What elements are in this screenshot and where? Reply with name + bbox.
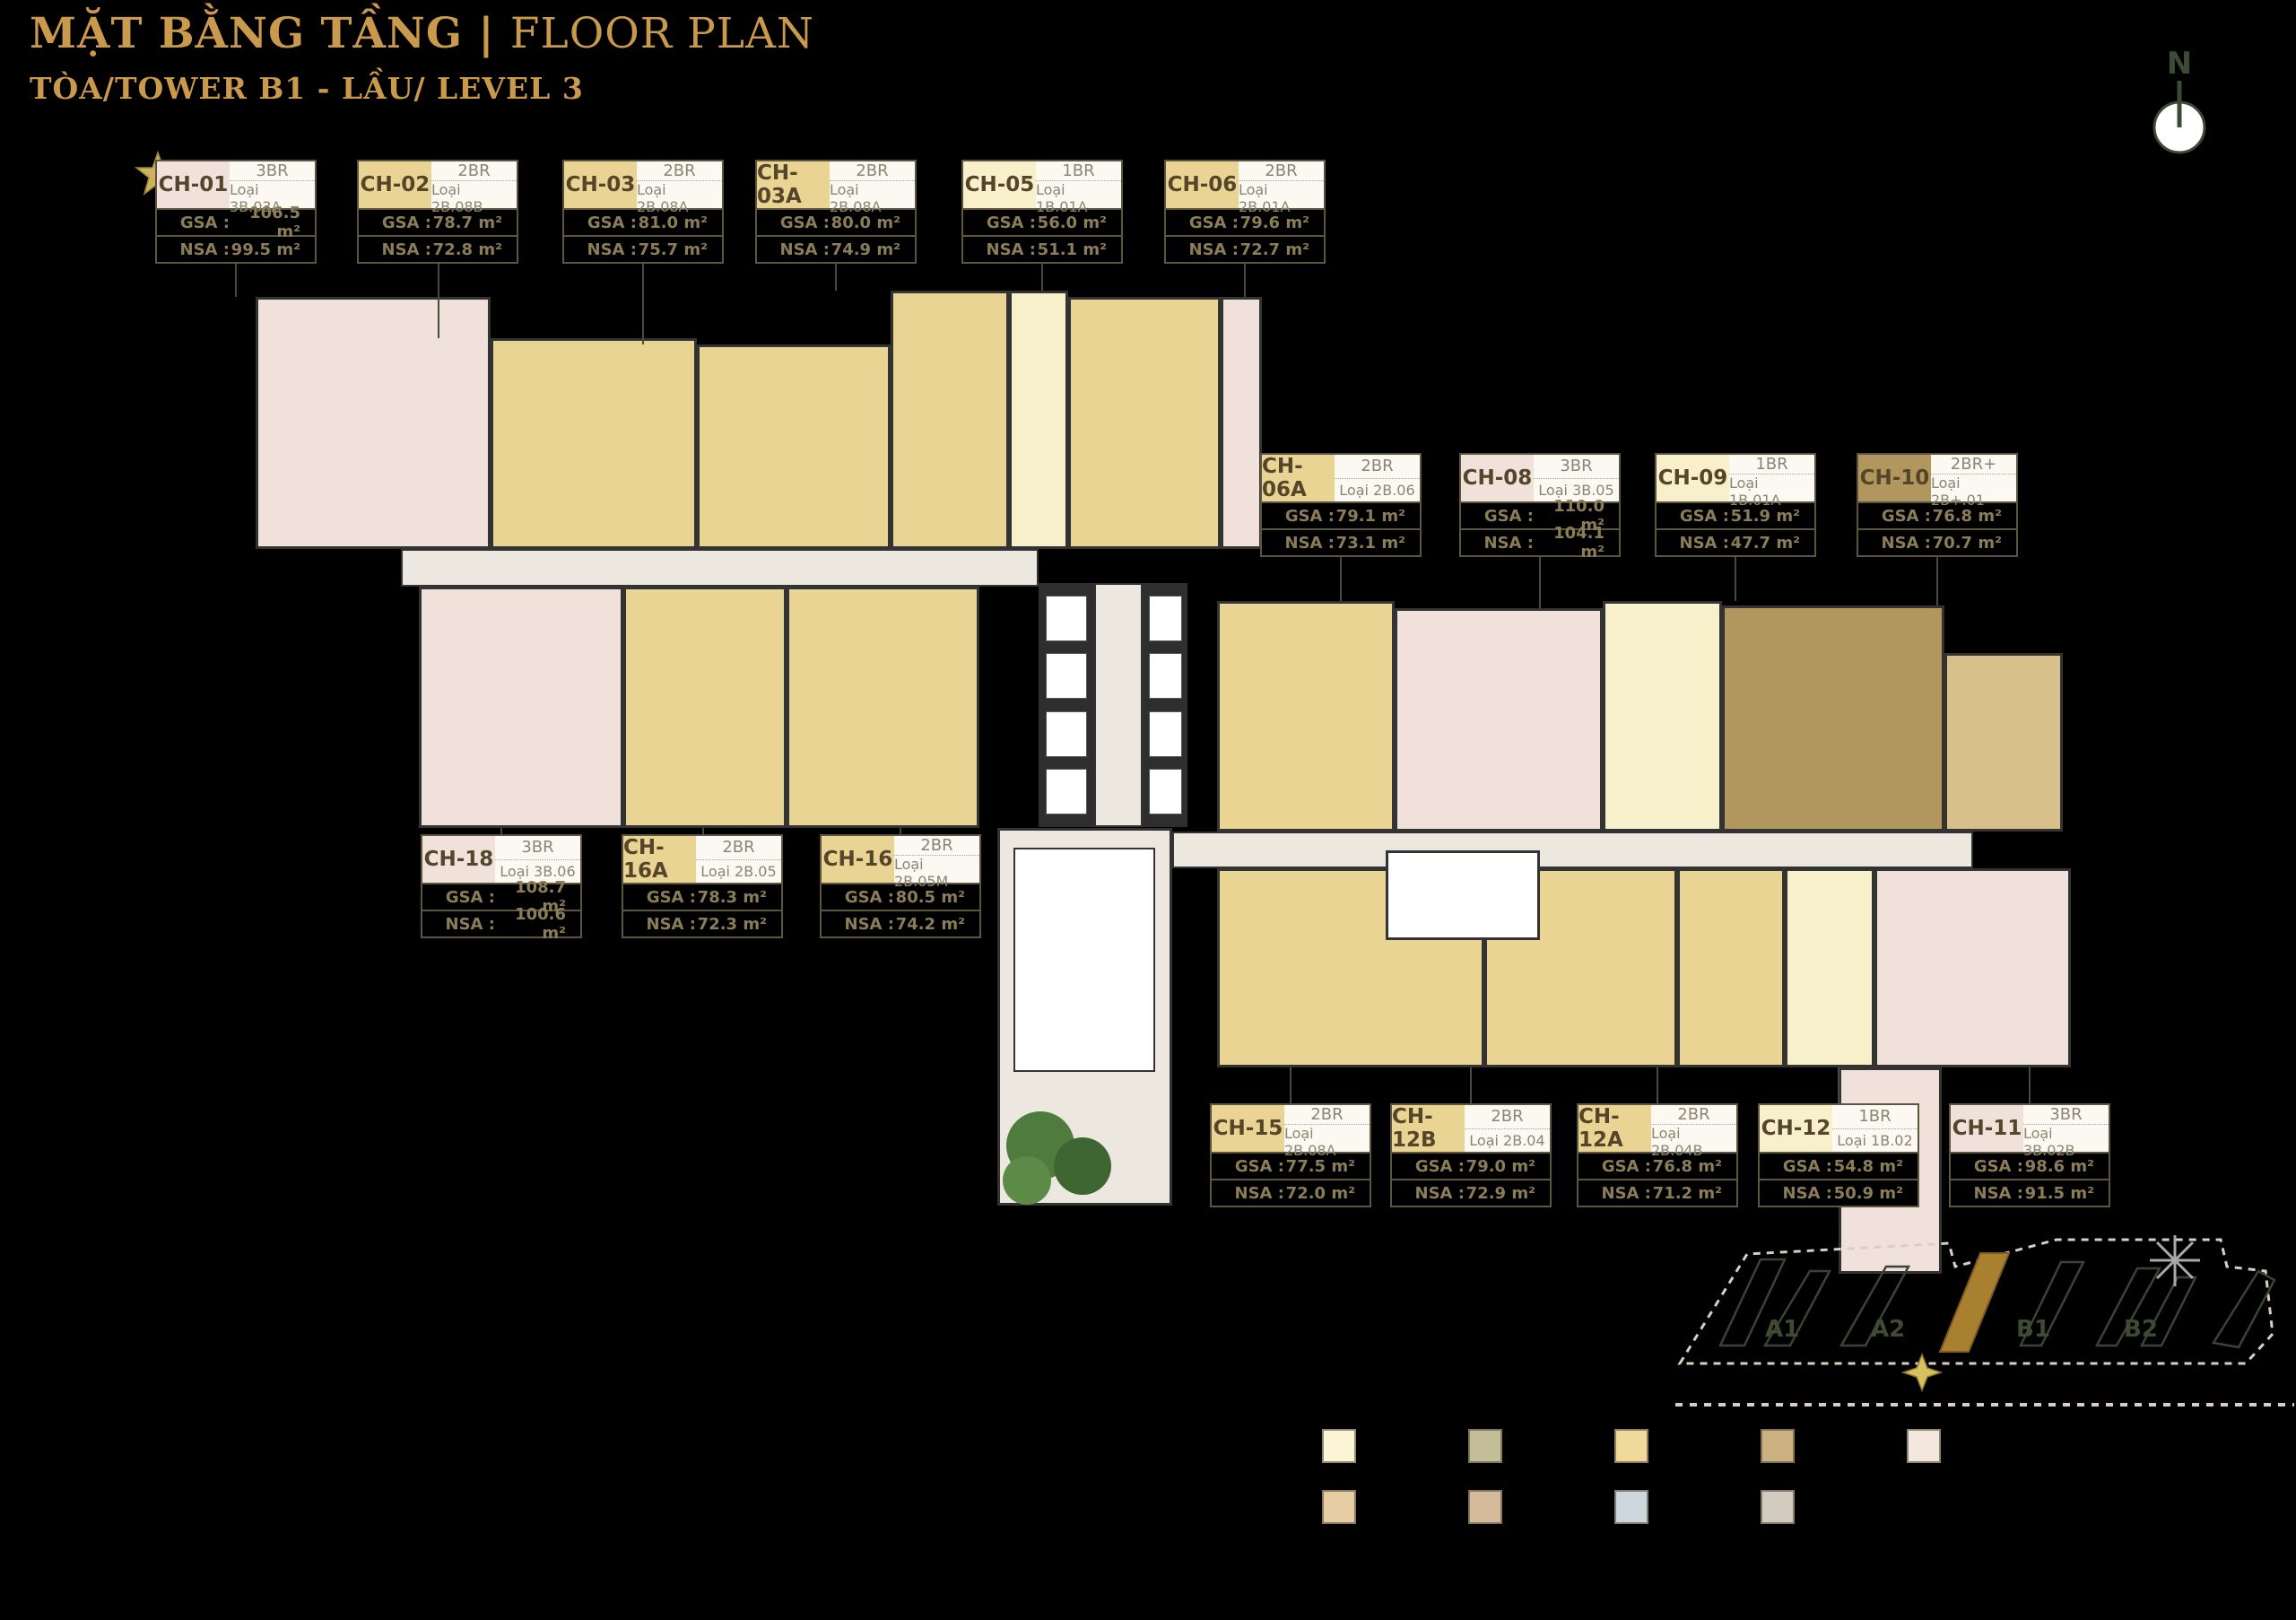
unit-code: CH-16A (623, 836, 696, 883)
unit-layout-type: Loại 2B.01A (1239, 181, 1324, 215)
minimap-label-b2: B2 (2124, 1316, 2158, 1343)
unit-layout-type: Loại 2B.06 (1335, 479, 1420, 502)
gsa-value: 98.6 m² (2023, 1157, 2109, 1176)
unit-code: CH-01 (157, 161, 230, 208)
unit-bedroom-type: 2BR (1239, 161, 1324, 181)
unit-layout-type: Loại 1B.01A (1729, 475, 1814, 509)
nsa-value: 74.2 m² (894, 915, 979, 934)
nsa-value: 104.1 m² (1534, 524, 1619, 562)
tower-b1-highlighted (1940, 1253, 2009, 1352)
nsa-label: NSA : (422, 915, 495, 934)
elevator-cell (1046, 711, 1086, 757)
gsa-value: 76.8 m² (1651, 1157, 1736, 1176)
unit-code: CH-09 (1657, 455, 1729, 501)
unit-bedroom-type: 3BR (1534, 455, 1619, 479)
gsa-label: GSA : (1212, 1157, 1284, 1176)
card-connector-line (1244, 260, 1246, 297)
unit-card-ch-05: CH-05 1BR Loại 1B.01A GSA : 56.0 m² NSA … (961, 160, 1123, 264)
plan-unit-ch-06a (1217, 601, 1395, 832)
elevator-cell (1149, 653, 1182, 699)
unit-layout-type: Loại 2B.08B (431, 181, 517, 215)
unit-card-ch-06a: CH-06A 2BR Loại 2B.06 GSA : 79.1 m² NSA … (1260, 453, 1422, 557)
unit-bedroom-type: 1BR (1036, 161, 1121, 181)
nsa-value: 72.8 m² (431, 240, 517, 259)
gsa-value: 106.5 m² (230, 204, 315, 241)
unit-bedroom-type: 1BR (1729, 455, 1814, 475)
nsa-label: NSA : (1951, 1184, 2023, 1203)
nsa-value: 73.1 m² (1335, 534, 1420, 553)
gsa-value: 78.3 m² (696, 888, 781, 907)
legend-swatch-row2-3 (1614, 1490, 1648, 1524)
plan-unit-ch-06 (1068, 297, 1221, 549)
gsa-value: 79.1 m² (1335, 507, 1420, 526)
nsa-value: 100.6 m² (495, 905, 580, 943)
card-connector-line (1657, 1067, 1658, 1103)
plan-unit-ch-12a (1677, 868, 1785, 1067)
plan-elevator-bank-west (1039, 583, 1094, 827)
unit-code: CH-15 (1212, 1105, 1284, 1152)
unit-layout-type: Loại 2B.04 (1465, 1129, 1550, 1153)
gsa-label: GSA : (1951, 1157, 2023, 1176)
elevator-cell (1149, 769, 1182, 814)
unit-card-ch-01: CH-01 3BR Loại 3B.03A GSA : 106.5 m² NSA… (155, 160, 317, 264)
nsa-value: 71.2 m² (1651, 1184, 1736, 1203)
unit-bedroom-type: 1BR (1832, 1105, 1918, 1129)
nsa-value: 70.7 m² (1931, 534, 2016, 553)
gsa-label: GSA : (1760, 1157, 1832, 1176)
gsa-label: GSA : (1166, 213, 1239, 232)
card-connector-line (1290, 1067, 1291, 1103)
unit-code: CH-12B (1392, 1105, 1465, 1152)
location-star-icon (1903, 1354, 1941, 1390)
unit-layout-type: Loại 2B.05 (696, 860, 781, 884)
unit-layout-type: Loại 2B.04B (1651, 1125, 1736, 1159)
unit-card-ch-18: CH-18 3BR Loại 3B.06 GSA : 108.7 m² NSA … (421, 834, 582, 938)
gsa-label: GSA : (623, 888, 696, 907)
plan-unit-ch-03 (697, 344, 891, 549)
nsa-label: NSA : (963, 240, 1036, 259)
plan-core-corridor (1094, 583, 1143, 827)
unit-card-ch-03: CH-03 2BR Loại 2B.08A GSA : 81.0 m² NSA … (562, 160, 724, 264)
card-connector-line (1340, 553, 1342, 601)
unit-code: CH-03 (564, 161, 637, 208)
plan-unit-east-of-ch-06 (1221, 297, 1262, 549)
plan-unit-east-end (1944, 653, 2063, 832)
gsa-label: GSA : (359, 213, 431, 232)
nsa-label: NSA : (1657, 534, 1729, 553)
elevator-cell (1149, 711, 1182, 757)
unit-code: CH-18 (422, 836, 495, 883)
unit-bedroom-type: 2BR (431, 161, 517, 181)
plan-unit-ch-02 (491, 338, 697, 549)
nsa-label: NSA : (1166, 240, 1239, 259)
nsa-value: 72.7 m² (1239, 240, 1324, 259)
unit-card-ch-10: CH-10 2BR+ Loại 2B+.01 GSA : 76.8 m² NSA… (1857, 453, 2018, 557)
unit-code: CH-06A (1262, 455, 1335, 501)
nsa-value: 51.1 m² (1036, 240, 1121, 259)
elevator-cell (1149, 596, 1182, 641)
unit-bedroom-type: 3BR (495, 836, 580, 860)
gsa-label: GSA : (422, 888, 495, 907)
gsa-value: 54.8 m² (1832, 1157, 1918, 1176)
unit-code: CH-16 (822, 836, 894, 883)
gsa-value: 81.0 m² (637, 213, 722, 232)
card-connector-line (1041, 260, 1043, 291)
unit-code: CH-12A (1578, 1105, 1651, 1152)
gsa-label: GSA : (1461, 507, 1534, 526)
gsa-value: 79.0 m² (1465, 1157, 1550, 1176)
unit-card-ch-08: CH-08 3BR Loại 3B.05 GSA : 110.0 m² NSA … (1459, 453, 1621, 557)
unit-bedroom-type: 2BR (1651, 1105, 1736, 1125)
unit-card-ch-12b: CH-12B 2BR Loại 2B.04 GSA : 79.0 m² NSA … (1390, 1103, 1552, 1207)
plan-corridor-west (401, 549, 1039, 587)
card-connector-line (1936, 553, 1938, 605)
plan-unit-ch-05 (1009, 291, 1068, 549)
gsa-label: GSA : (822, 888, 894, 907)
plan-unit-ch-11 (1874, 868, 2071, 1067)
plan-unit-ch-16 (787, 587, 979, 828)
unit-layout-type: Loại 2B+.01 (1931, 475, 2016, 509)
floor-plan-page: MẶT BẰNG TẦNG | FLOOR PLAN TÒA/TOWER B1 … (0, 0, 2296, 1620)
unit-bedroom-type: 3BR (2023, 1105, 2109, 1125)
site-minimap: A1 A2 B1 B2 (1675, 1231, 2294, 1415)
card-connector-line (2029, 1067, 2031, 1103)
unit-code: CH-10 (1858, 455, 1931, 501)
nsa-label: NSA : (1461, 534, 1534, 553)
unit-code: CH-03A (757, 161, 830, 208)
card-connector-line (900, 828, 901, 834)
nsa-value: 50.9 m² (1832, 1184, 1918, 1203)
unit-card-ch-09: CH-09 1BR Loại 1B.01A GSA : 51.9 m² NSA … (1655, 453, 1816, 557)
gsa-value: 78.7 m² (431, 213, 517, 232)
card-connector-line (1838, 1067, 1839, 1103)
gsa-label: GSA : (157, 213, 230, 232)
nsa-value: 91.5 m² (2023, 1184, 2109, 1203)
nsa-value: 72.0 m² (1284, 1184, 1370, 1203)
gsa-value: 80.0 m² (830, 213, 915, 232)
nsa-label: NSA : (359, 240, 431, 259)
compass-rose-icon (2150, 1235, 2200, 1286)
unit-bedroom-type: 2BR (637, 161, 722, 181)
elevator-cell (1046, 653, 1086, 699)
unit-code: CH-12 (1760, 1105, 1832, 1152)
plan-unit-ch-10 (1722, 605, 1944, 832)
plan-unit-ch-12 (1785, 868, 1874, 1067)
unit-layout-type: Loại 1B.01A (1036, 181, 1121, 215)
nsa-label: NSA : (1262, 534, 1335, 553)
gsa-label: GSA : (1858, 507, 1931, 526)
gsa-value: 76.8 m² (1931, 507, 2016, 526)
nsa-label: NSA : (1212, 1184, 1284, 1203)
unit-card-ch-12a: CH-12A 2BR Loại 2B.04B GSA : 76.8 m² NSA… (1577, 1103, 1738, 1207)
unit-bedroom-type: 2BR (894, 836, 979, 856)
nsa-value: 72.3 m² (696, 915, 781, 934)
gsa-label: GSA : (757, 213, 830, 232)
card-connector-line (1470, 1067, 1472, 1103)
unit-code: CH-02 (359, 161, 431, 208)
legend-swatch-row2-2 (1468, 1490, 1502, 1524)
unit-bedroom-type: 3BR (230, 161, 315, 181)
unit-layout-type: Loại 2B.05M (894, 856, 979, 890)
nsa-value: 99.5 m² (230, 240, 315, 259)
unit-code: CH-08 (1461, 455, 1534, 501)
tower-east-outline (2213, 1271, 2274, 1347)
gsa-value: 56.0 m² (1036, 213, 1121, 232)
nsa-label: NSA : (822, 915, 894, 934)
nsa-label: NSA : (157, 240, 230, 259)
minimap-label-a2: A2 (1871, 1316, 1905, 1343)
legend-swatch-row1-2 (1468, 1429, 1502, 1463)
unit-layout-type: Loại 2B.08A (637, 181, 722, 215)
tree-icon (1000, 1105, 1126, 1213)
unit-code: CH-05 (963, 161, 1036, 208)
gsa-value: 80.5 m² (894, 888, 979, 907)
unit-card-ch-16: CH-16 2BR Loại 2B.05M GSA : 80.5 m² NSA … (820, 834, 981, 938)
unit-card-ch-12: CH-12 1BR Loại 1B.02 GSA : 54.8 m² NSA :… (1758, 1103, 1919, 1207)
unit-card-ch-11: CH-11 3BR Loại 3B.02B GSA : 98.6 m² NSA … (1949, 1103, 2110, 1207)
nsa-value: 72.9 m² (1465, 1184, 1550, 1203)
plan-unit-ch-08 (1395, 608, 1603, 832)
plan-corridor-east (1172, 832, 1973, 868)
card-connector-line (642, 260, 644, 344)
plan-unit-ch-03a (891, 291, 1009, 549)
unit-bedroom-type: 2BR (1284, 1105, 1370, 1125)
plan-unit-ch-01 (256, 297, 491, 549)
card-connector-line (702, 828, 704, 834)
unit-card-ch-02: CH-02 2BR Loại 2B.08B GSA : 78.7 m² NSA … (357, 160, 518, 264)
card-connector-line (1735, 553, 1736, 601)
elevator-cell (1046, 596, 1086, 641)
plan-unit-ch-18 (419, 587, 623, 828)
unit-bedroom-type: 2BR (696, 836, 781, 860)
gsa-label: GSA : (1262, 507, 1335, 526)
gsa-label: GSA : (1578, 1157, 1651, 1176)
gsa-value: 77.5 m² (1284, 1157, 1370, 1176)
nsa-value: 74.9 m² (830, 240, 915, 259)
nsa-label: NSA : (757, 240, 830, 259)
unit-card-ch-15: CH-15 2BR Loại 2B.08A GSA : 77.5 m² NSA … (1210, 1103, 1371, 1207)
unit-card-ch-06: CH-06 2BR Loại 2B.01A GSA : 79.6 m² NSA … (1164, 160, 1326, 264)
gsa-value: 51.9 m² (1729, 507, 1814, 526)
legend-swatch-row2-4 (1761, 1490, 1795, 1524)
unit-layout-type: Loại 2B.08A (830, 181, 915, 215)
unit-bedroom-type: 2BR+ (1931, 455, 2016, 475)
unit-code: CH-06 (1166, 161, 1239, 208)
unit-bedroom-type: 2BR (830, 161, 915, 181)
card-connector-line (438, 260, 439, 338)
gsa-label: GSA : (1657, 507, 1729, 526)
nsa-label: NSA : (1578, 1184, 1651, 1203)
plan-unit-ch-09 (1603, 601, 1722, 832)
nsa-value: 47.7 m² (1729, 534, 1814, 553)
plan-unit-ch-16a (623, 587, 787, 828)
plan-lobby-inner (1013, 848, 1155, 1072)
gsa-value: 79.6 m² (1239, 213, 1324, 232)
nsa-label: NSA : (1392, 1184, 1465, 1203)
nsa-label: NSA : (1760, 1184, 1832, 1203)
card-connector-line (1539, 553, 1541, 608)
nsa-value: 75.7 m² (637, 240, 722, 259)
legend-swatch-row1-1 (1322, 1429, 1356, 1463)
unit-code: CH-11 (1951, 1105, 2023, 1152)
card-connector-line (835, 260, 837, 291)
unit-card-ch-16a: CH-16A 2BR Loại 2B.05 GSA : 78.3 m² NSA … (622, 834, 783, 938)
legend-swatch-row1-4 (1761, 1429, 1795, 1463)
elevator-cell (1046, 769, 1086, 814)
gsa-label: GSA : (1392, 1157, 1465, 1176)
gsa-label: GSA : (564, 213, 637, 232)
unit-layout-type: Loại 3B.02B (2023, 1125, 2109, 1159)
gsa-label: GSA : (963, 213, 1036, 232)
minimap-label-a1: A1 (1765, 1316, 1799, 1343)
card-connector-line (500, 828, 502, 834)
unit-layout-type: Loại 1B.02 (1832, 1129, 1918, 1153)
unit-bedroom-type: 2BR (1335, 455, 1420, 479)
legend-swatch-row1-5 (1907, 1429, 1941, 1463)
nsa-label: NSA : (623, 915, 696, 934)
nsa-label: NSA : (1858, 534, 1931, 553)
nsa-label: NSA : (564, 240, 637, 259)
unit-bedroom-type: 2BR (1465, 1105, 1550, 1129)
unit-layout-type: Loại 2B.08A (1284, 1125, 1370, 1159)
minimap-label-b1: B1 (2016, 1316, 2050, 1343)
plan-elevator-bank-east (1143, 583, 1187, 827)
legend-swatch-row2-1 (1322, 1490, 1356, 1524)
plan-stairwell (1386, 850, 1540, 940)
unit-card-ch-03a: CH-03A 2BR Loại 2B.08A GSA : 80.0 m² NSA… (755, 160, 917, 264)
card-connector-line (235, 260, 237, 297)
legend-swatch-row1-3 (1614, 1429, 1648, 1463)
